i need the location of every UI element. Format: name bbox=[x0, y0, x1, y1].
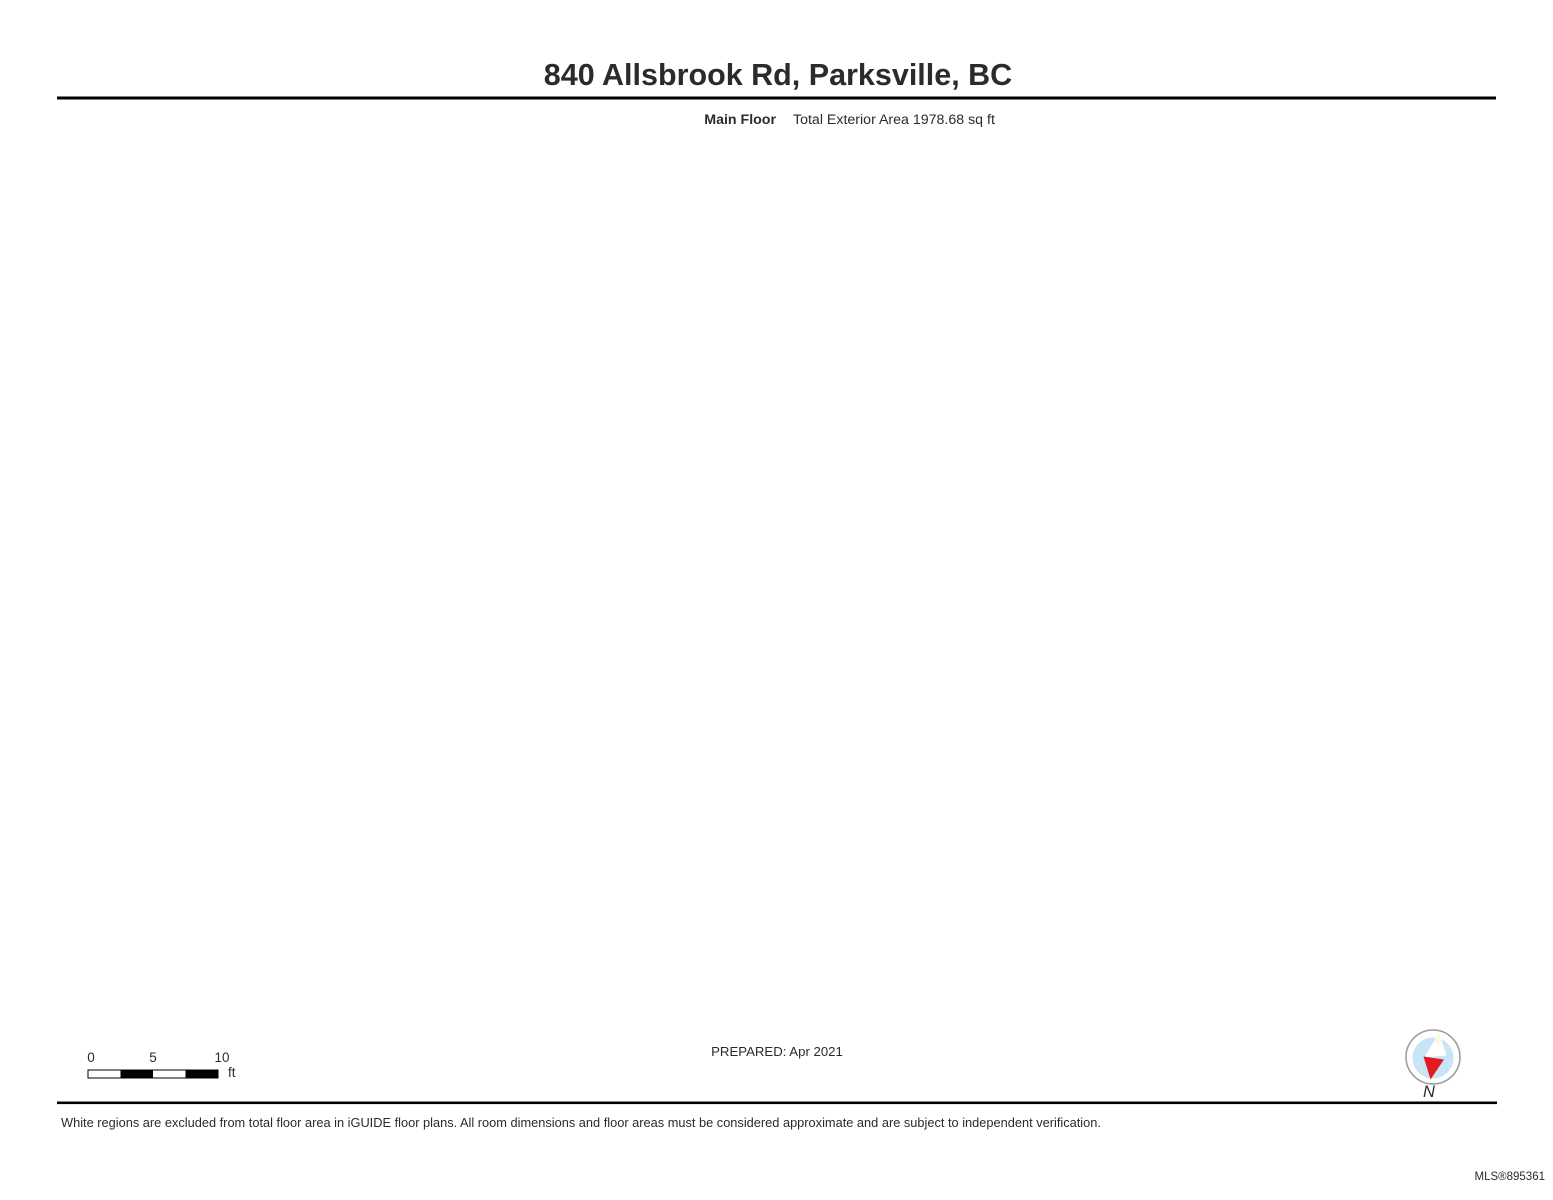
svg-text:Main Floor: Main Floor bbox=[704, 112, 776, 128]
svg-text:MLS®895361: MLS®895361 bbox=[1475, 1171, 1546, 1183]
svg-text:840 Allsbrook Rd, Parksville,: 840 Allsbrook Rd, Parksville, BC bbox=[544, 58, 1012, 92]
svg-text:N: N bbox=[1423, 1083, 1435, 1101]
svg-text:5: 5 bbox=[149, 1050, 157, 1065]
svg-text:Total Exterior Area 1978.68 sq: Total Exterior Area 1978.68 sq ft bbox=[793, 112, 995, 128]
svg-text:ft: ft bbox=[228, 1065, 236, 1080]
svg-text:0: 0 bbox=[87, 1050, 95, 1065]
svg-text:PREPARED: Apr 2021: PREPARED: Apr 2021 bbox=[711, 1044, 843, 1059]
svg-text:White regions are excluded fro: White regions are excluded from total fl… bbox=[61, 1115, 1101, 1130]
svg-text:10: 10 bbox=[214, 1050, 229, 1065]
